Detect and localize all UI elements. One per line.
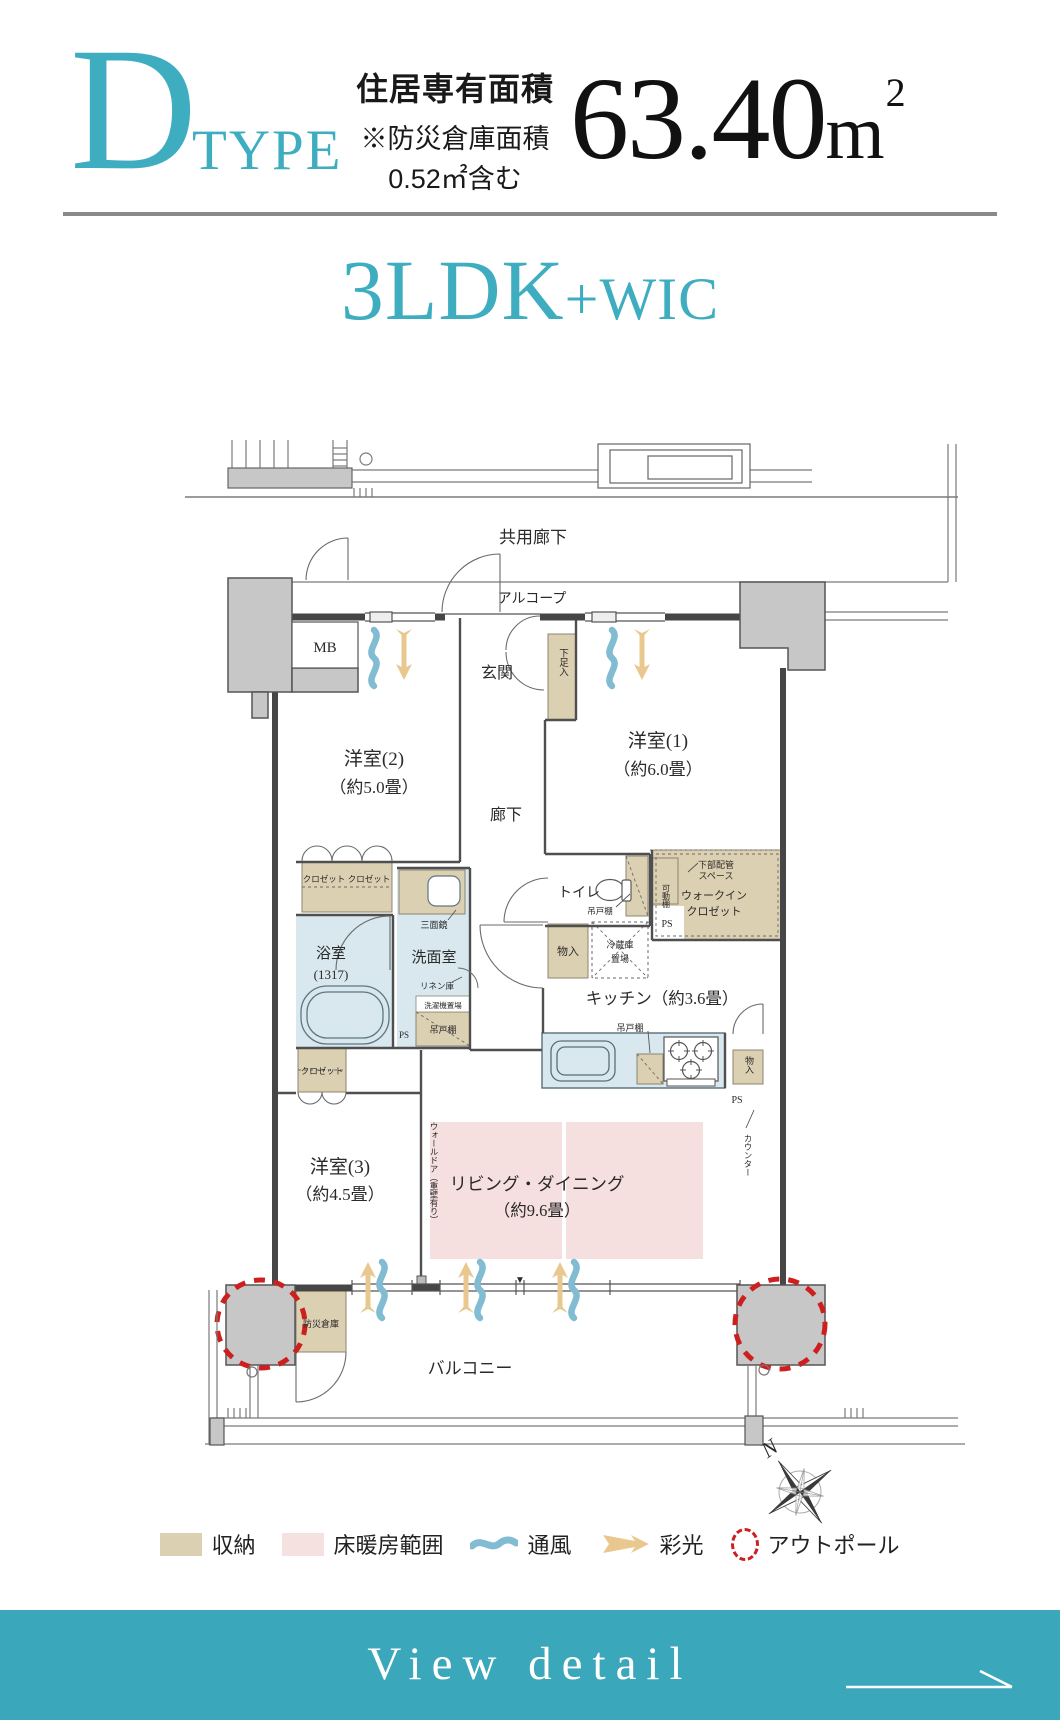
type-letter: D xyxy=(70,22,197,198)
label-room2-size: （約5.0畳） xyxy=(329,778,418,797)
storage-swatch-icon xyxy=(160,1533,202,1556)
label-disaster-storage: 防災倉庫 xyxy=(303,1318,339,1329)
label-fridge-1: 冷蔵庫 xyxy=(606,939,633,950)
label-linen: リネン庫 xyxy=(420,981,455,991)
label-pipe-space-2: スペース xyxy=(699,871,734,881)
label-hanging-cupboard: 吊戸棚 xyxy=(429,1024,456,1035)
legend-label: 通風 xyxy=(527,1528,571,1560)
label-alcove: アルコープ xyxy=(498,591,567,607)
legend-item-ventilation: 通風 xyxy=(470,1528,571,1560)
label-closet: クロゼット xyxy=(303,874,346,884)
floorheat-swatch-icon xyxy=(282,1533,324,1556)
label-washer: 洗濯機置場 xyxy=(424,1000,462,1010)
label-mb: MB xyxy=(313,640,336,656)
layout-title: 3LDK+WIC xyxy=(0,243,1060,338)
legend-label: 彩光 xyxy=(660,1528,704,1560)
label-mirror: 三面鏡 xyxy=(420,919,447,930)
label-bath: 浴室 xyxy=(316,945,346,962)
label-hall: 廊下 xyxy=(490,806,522,824)
label-ps: PS xyxy=(731,1095,742,1106)
header-divider xyxy=(63,212,997,216)
label-room1-size: （約6.0畳） xyxy=(613,760,702,779)
label-ps: PS xyxy=(399,1030,409,1040)
legend-label: 収納 xyxy=(211,1528,255,1560)
label-walldoor: ウォールドア（重壁有り） xyxy=(429,1122,439,1224)
label-wic-1: ウォークイン xyxy=(681,889,747,902)
label-ld-size: （約9.6畳） xyxy=(494,1201,581,1220)
label-balcony: バルコニー xyxy=(428,1359,513,1378)
area-unit: m xyxy=(826,91,885,175)
label-hanging-cupboard: 吊戸棚 xyxy=(616,1022,643,1033)
type-label: TYPE xyxy=(192,122,343,179)
drain-icon xyxy=(247,1367,257,1377)
label-pipe-space-1: 下部配管 xyxy=(698,859,734,870)
label-room2: 洋室(2) xyxy=(344,748,404,770)
view-detail-button[interactable]: View detail xyxy=(0,1610,1060,1720)
area-superscript: 2 xyxy=(886,70,906,115)
label-counter: カウンター xyxy=(743,1134,753,1177)
label-storage: 物入 xyxy=(744,1055,754,1074)
legend-item-storage: 収納 xyxy=(160,1528,255,1560)
label-kitchen: キッチン（約3.6畳） xyxy=(586,989,739,1008)
area-info: 住居専有面積 ※防災倉庫面積 0.52㎡含む xyxy=(330,64,580,196)
floor-plan: 共用廊下 アルコープ xyxy=(0,380,1060,1530)
stove-icon xyxy=(664,1037,718,1086)
legend-label: アウトポール xyxy=(768,1528,900,1560)
legend: 収納 床暖房範囲 通風 彩光 アウトポール xyxy=(0,1522,1060,1566)
label-closet: クロゼット xyxy=(348,874,391,884)
vanity-icon xyxy=(428,876,460,906)
daylight-icon xyxy=(599,1534,651,1554)
floorplan-page: { "header": { "letter": "D", "type_label… xyxy=(0,0,1060,1720)
legend-item-outpole: アウトポール xyxy=(731,1528,900,1561)
legend-item-daylight: 彩光 xyxy=(599,1528,704,1560)
label-hanging-cupboard: 吊戸棚 xyxy=(587,906,613,916)
area-value: 63.40m2 xyxy=(570,48,905,190)
legend-item-floorheat: 床暖房範囲 xyxy=(282,1528,443,1560)
area-title: 住居専有面積 xyxy=(330,64,580,110)
label-closet: クロゼット xyxy=(301,1066,344,1076)
arrow-right-icon xyxy=(844,1662,1014,1690)
label-bath-size: (1317) xyxy=(314,967,349,982)
label-room1: 洋室(1) xyxy=(628,730,688,752)
layout-main: 3LDK xyxy=(341,242,565,338)
label-genkan: 玄関 xyxy=(481,664,513,682)
label-room3-size: （約4.5畳） xyxy=(295,1185,384,1204)
window-center-marker: ▼ xyxy=(515,1275,525,1286)
ventilation-icon xyxy=(470,1534,518,1554)
area-note-2: 0.52㎡含む xyxy=(330,157,580,196)
label-ps: PS xyxy=(661,919,672,930)
label-room3: 洋室(3) xyxy=(310,1156,370,1178)
site-structure xyxy=(185,440,958,620)
label-washroom: 洗面室 xyxy=(411,949,456,966)
label-wic-2: クロゼット xyxy=(687,905,742,918)
label-toilet: トイレ xyxy=(558,886,600,901)
layout-plus: +WIC xyxy=(565,266,719,332)
legend-label: 床暖房範囲 xyxy=(333,1528,443,1560)
label-living-dining: リビング・ダイニング xyxy=(450,1174,625,1194)
label-shoe: 下足入 xyxy=(557,648,569,677)
label-movable-shelf: 可動棚 xyxy=(662,884,671,909)
label-storage: 物入 xyxy=(557,944,579,958)
label-fridge-2: 置場 xyxy=(611,953,629,964)
outpole-icon xyxy=(731,1528,759,1561)
label-common-corridor: 共用廊下 xyxy=(499,528,567,547)
area-note-1: ※防災倉庫面積 xyxy=(330,117,580,156)
area-number: 63.40 xyxy=(570,53,826,184)
